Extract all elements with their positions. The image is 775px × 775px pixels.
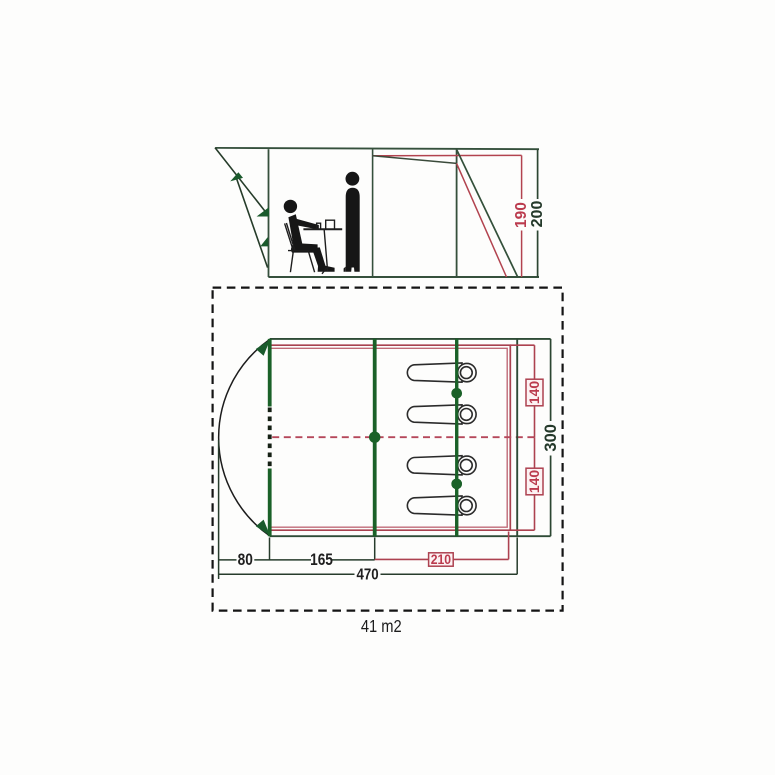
svg-text:200: 200 [529,201,546,228]
svg-text:470: 470 [356,566,378,583]
svg-text:190: 190 [513,202,530,228]
svg-text:140: 140 [526,470,542,494]
svg-text:140: 140 [526,381,542,405]
svg-text:165: 165 [310,551,333,569]
svg-text:210: 210 [431,551,451,567]
svg-text:80: 80 [238,551,253,569]
svg-text:41 m2: 41 m2 [361,617,402,636]
svg-text:300: 300 [542,424,560,452]
